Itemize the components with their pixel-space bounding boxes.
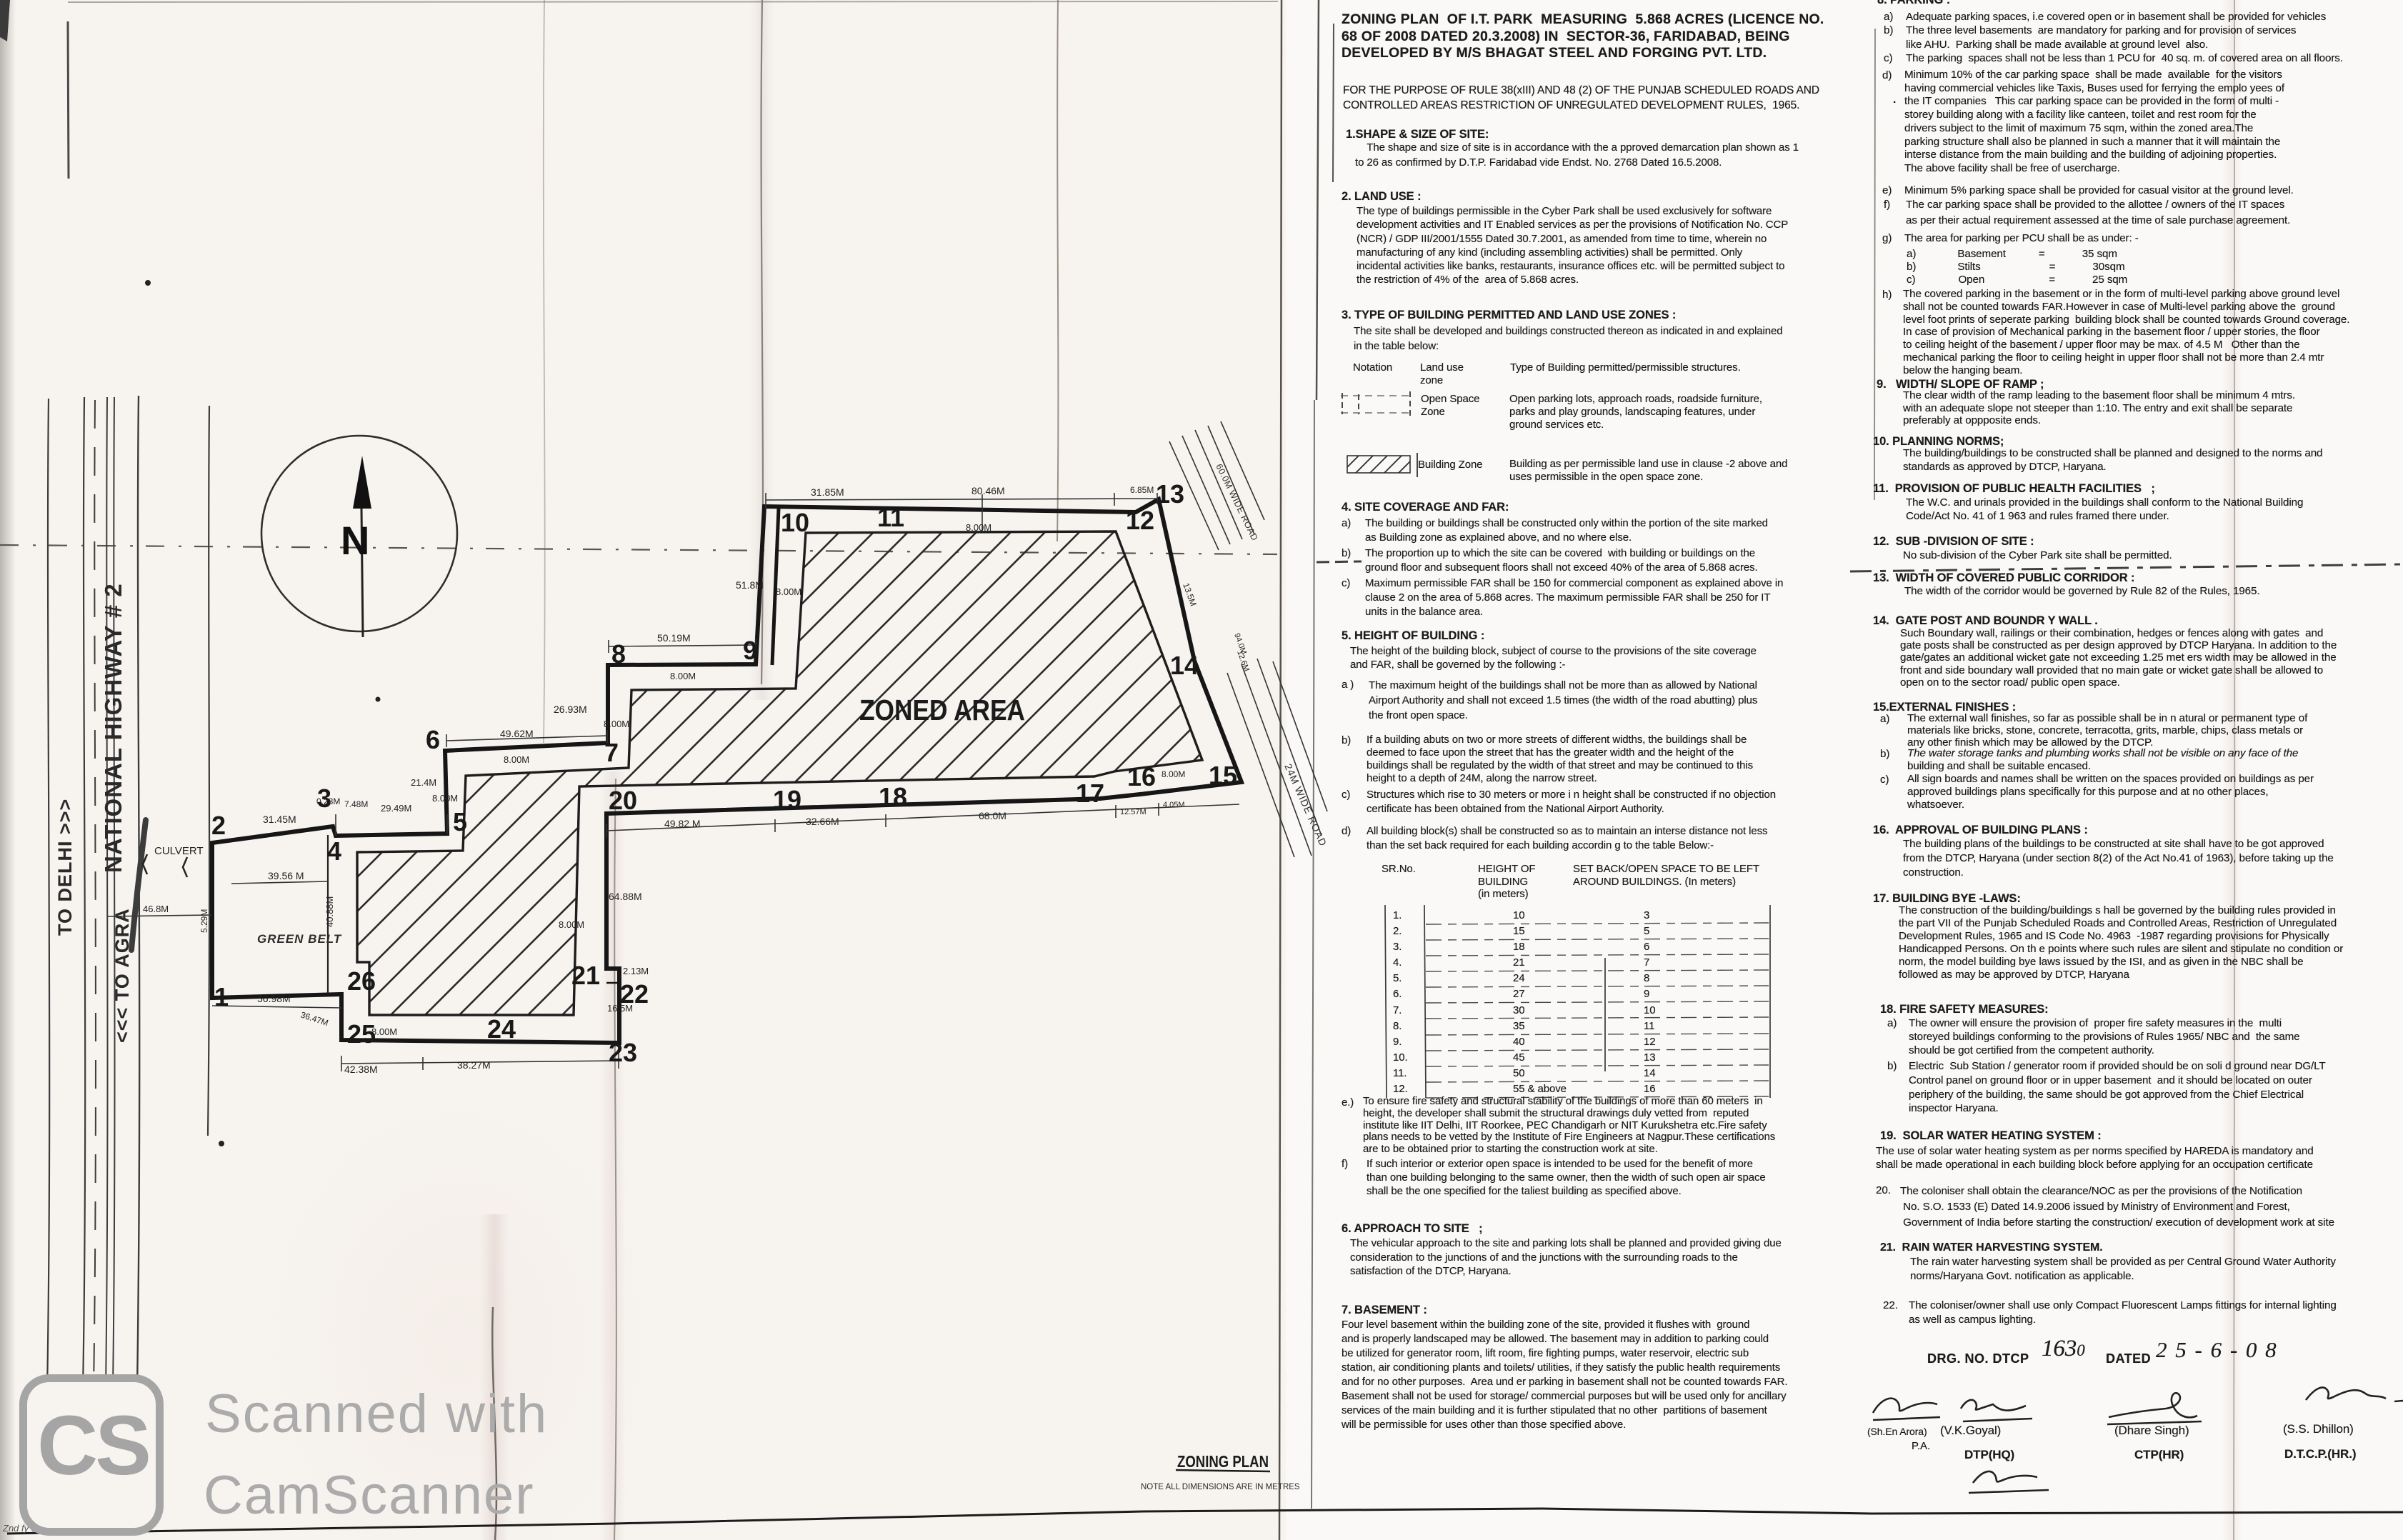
svg-text:8.00M: 8.00M (1161, 769, 1185, 779)
svg-text:9: 9 (743, 636, 757, 665)
svg-text:15: 15 (1209, 761, 1237, 790)
svg-text:12.6M: 12.6M (1235, 649, 1251, 673)
svg-text:24: 24 (487, 1014, 516, 1044)
svg-text:26: 26 (347, 966, 376, 996)
svg-text:<<< TO AGRA: <<< TO AGRA (111, 908, 133, 1043)
svg-text:8.00M: 8.00M (559, 919, 584, 930)
svg-text:60.0M WIDE ROAD: 60.0M WIDE ROAD (1214, 462, 1259, 542)
svg-text:2: 2 (211, 811, 226, 840)
svg-text:50.19M: 50.19M (657, 632, 691, 644)
svg-text:2.13M: 2.13M (623, 966, 649, 976)
svg-text:6: 6 (426, 725, 440, 754)
svg-text:4.05M: 4.05M (1163, 801, 1185, 809)
svg-text:49.62M: 49.62M (500, 728, 534, 739)
svg-text:46.8M: 46.8M (143, 904, 169, 914)
svg-text:26.93M: 26.93M (554, 704, 587, 715)
svg-text:GREEN BELT: GREEN BELT (257, 932, 342, 946)
svg-text:17: 17 (1076, 779, 1104, 808)
svg-text:80.46M: 80.46M (971, 485, 1005, 496)
svg-text:16: 16 (1127, 762, 1156, 791)
svg-text:6.85M: 6.85M (1130, 485, 1154, 495)
svg-text:23: 23 (609, 1038, 637, 1067)
svg-text:21.4M: 21.4M (411, 777, 436, 788)
svg-text:12.57M: 12.57M (1120, 808, 1146, 816)
svg-text:8.00M: 8.00M (504, 754, 529, 765)
svg-text:40.88M: 40.88M (324, 896, 335, 927)
svg-text:10: 10 (781, 508, 809, 537)
svg-text:4: 4 (327, 836, 341, 866)
svg-text:8.00M: 8.00M (670, 671, 696, 681)
svg-text:68.0M: 68.0M (979, 810, 1006, 821)
svg-text:64.88M: 64.88M (609, 891, 642, 902)
svg-text:TO DELHI >>>: TO DELHI >>> (54, 799, 76, 936)
svg-text:11: 11 (877, 503, 904, 532)
svg-text:N: N (341, 518, 369, 563)
svg-text:42.38M: 42.38M (344, 1064, 378, 1075)
svg-text:32.66M: 32.66M (806, 816, 839, 827)
svg-text:8.00M: 8.00M (966, 522, 991, 533)
svg-text:NATIONAL HIGHWAY # 2: NATIONAL HIGHWAY # 2 (100, 583, 126, 873)
svg-text:21: 21 (571, 961, 600, 990)
svg-text:19: 19 (773, 785, 801, 814)
svg-text:24M WIDE ROAD: 24M WIDE ROAD (1282, 762, 1329, 849)
svg-text:1: 1 (214, 982, 229, 1011)
svg-text:ZONING PLAN: ZONING PLAN (1177, 1452, 1269, 1471)
svg-text:5.29M: 5.29M (199, 909, 209, 933)
svg-text:13: 13 (1156, 479, 1184, 509)
svg-text:14: 14 (1170, 651, 1199, 680)
svg-text:CULVERT: CULVERT (154, 845, 204, 857)
svg-text:8.00M: 8.00M (776, 586, 801, 597)
svg-text:22: 22 (620, 979, 649, 1009)
svg-text:20: 20 (609, 786, 637, 815)
svg-text:8: 8 (611, 639, 626, 669)
svg-text:31.45M: 31.45M (263, 814, 296, 825)
svg-text:8.00M: 8.00M (604, 719, 629, 729)
svg-text:ZONED AREA: ZONED AREA (859, 694, 1025, 726)
svg-text:5: 5 (453, 807, 467, 836)
svg-text:51.8M: 51.8M (736, 579, 764, 591)
svg-text:39.56 M: 39.56 M (268, 870, 304, 881)
svg-text:7.48M: 7.48M (344, 799, 368, 809)
svg-text:25: 25 (347, 1019, 376, 1049)
svg-text:NOTE ALL DIMENSIONS ARE IN ME: NOTE ALL DIMENSIONS ARE IN METRES (1141, 1483, 1300, 1491)
svg-text:56.98M: 56.98M (257, 993, 291, 1004)
svg-text:3: 3 (317, 784, 331, 813)
svg-text:18: 18 (879, 782, 907, 811)
svg-text:12: 12 (1126, 506, 1154, 535)
svg-text:29.49M: 29.49M (381, 803, 411, 814)
svg-text:31.85M: 31.85M (811, 486, 844, 498)
svg-text:38.27M: 38.27M (457, 1059, 491, 1071)
svg-text:49.82 M: 49.82 M (664, 818, 701, 829)
svg-text:36.47M: 36.47M (299, 1010, 329, 1029)
svg-text:7: 7 (604, 738, 619, 767)
svg-text:8.00M: 8.00M (432, 793, 458, 804)
